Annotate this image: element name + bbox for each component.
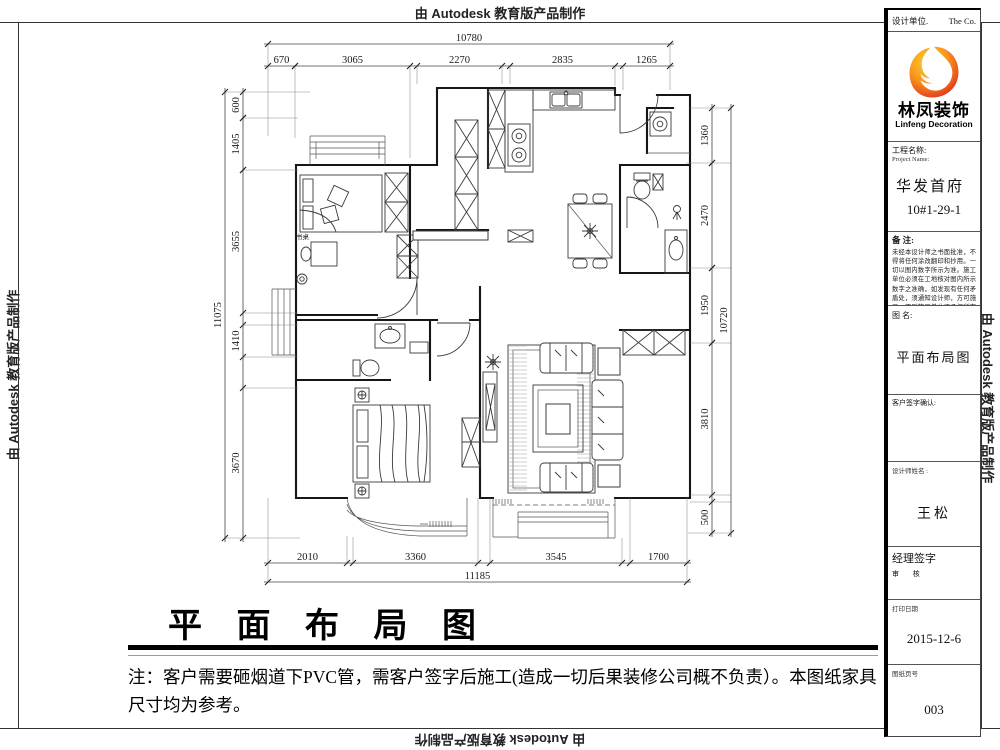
living-balcony <box>493 498 615 538</box>
sheet-number-label: 图纸页号 <box>892 668 976 678</box>
svg-text:1410: 1410 <box>231 331 242 352</box>
title-underline-thin <box>128 655 878 656</box>
review-label: 审 核 <box>892 569 976 579</box>
sofa-main <box>592 380 623 460</box>
svg-text:2010: 2010 <box>297 552 318 563</box>
washing-machine <box>650 112 671 136</box>
wardrobe-study <box>385 173 418 278</box>
project-label: 工程名称: <box>892 145 976 156</box>
svg-text:1700: 1700 <box>648 552 669 563</box>
svg-text:11185: 11185 <box>465 571 490 582</box>
print-date-label: 打印日期 <box>892 603 976 613</box>
bay-window-left <box>272 289 296 355</box>
sheet-number-value: 003 <box>892 702 976 718</box>
desk <box>297 242 337 284</box>
tall-cabinet-column <box>455 90 505 230</box>
svg-text:1265: 1265 <box>636 55 657 66</box>
education-stamp-top: 由 Autodesk 教育版产品制作 <box>0 3 1000 22</box>
dining-plant <box>582 223 598 239</box>
gas-stove <box>508 124 530 166</box>
wardrobe-living <box>623 330 685 355</box>
side-table-top <box>598 348 620 375</box>
toilet-main <box>634 173 650 199</box>
manager-signature-label: 经理签字 <box>892 550 976 566</box>
master-bed <box>353 405 430 482</box>
client-signature-label: 客户签字确认: <box>892 399 936 407</box>
logo-text-en: Linfeng Decoration <box>895 119 972 129</box>
bathroom-main <box>627 112 687 273</box>
study-room: 书桌 <box>296 173 418 318</box>
floor-plan-drawing: 书桌 <box>130 28 880 603</box>
master-vanity <box>375 324 428 353</box>
vanity-main <box>665 230 687 273</box>
bathroom-door <box>627 197 658 228</box>
nightstand-top <box>355 388 369 402</box>
education-stamp-bottom: 由 Autodesk 教育版产品制作 <box>0 731 1000 750</box>
nightstand-bottom <box>355 484 369 498</box>
stamp-border-top <box>0 22 1000 23</box>
education-stamp-left: 由 Autodesk 教育版产品制作 <box>3 290 22 460</box>
svg-text:2835: 2835 <box>552 55 573 66</box>
coffee-table <box>533 385 583 452</box>
company-logo: 林凤装饰 Linfeng Decoration <box>888 32 980 142</box>
svg-text:3065: 3065 <box>342 55 363 66</box>
desk-label: 书桌 <box>296 232 310 241</box>
construction-note: 注：客户需要砸烟道下PVC管，需客户签字后施工(造成一切后果装修公司概不负责）。… <box>128 663 880 719</box>
master-suite <box>347 323 480 536</box>
dimension-annotations: 6703065227028351265107802010336035451700… <box>213 33 734 585</box>
sofa-top <box>540 343 593 373</box>
study-door <box>377 278 417 318</box>
dining-set <box>568 194 612 268</box>
svg-text:3545: 3545 <box>546 552 567 563</box>
svg-text:670: 670 <box>274 55 290 66</box>
designer-name: 王松 <box>892 503 976 523</box>
design-unit-label: 设计单位. <box>892 15 928 27</box>
svg-text:3810: 3810 <box>700 409 711 430</box>
print-date-value: 2015-12-6 <box>892 631 976 647</box>
tv-cabinet <box>483 372 497 442</box>
notes-label: 备 注: <box>892 234 976 246</box>
bay-window-study <box>310 136 385 165</box>
entry-door <box>620 95 658 133</box>
master-door <box>437 323 470 356</box>
project-name: 华发首府 <box>896 175 976 196</box>
walls <box>296 88 690 498</box>
living-room <box>483 330 685 538</box>
drawing-name: 平面布局图 <box>892 347 976 366</box>
svg-text:11075: 11075 <box>213 302 224 328</box>
project-label-en: Project Name: <box>892 156 976 163</box>
shower-head <box>673 206 681 221</box>
stamp-border-bottom <box>0 728 1000 729</box>
svg-text:600: 600 <box>231 97 242 113</box>
svg-text:10720: 10720 <box>719 307 730 333</box>
phoenix-logo-icon <box>905 44 963 102</box>
kitchen <box>505 90 615 172</box>
svg-text:500: 500 <box>700 510 711 526</box>
drawing-name-label: 图 名: <box>892 310 976 321</box>
svg-text:1405: 1405 <box>231 134 242 155</box>
logo-text-cn: 林凤装饰 <box>898 102 970 120</box>
svg-text:1360: 1360 <box>700 125 711 146</box>
title-underline-thick <box>128 645 878 650</box>
plant <box>485 354 501 370</box>
svg-text:3670: 3670 <box>231 453 242 474</box>
designer-label: 设计师姓名 : <box>892 465 976 475</box>
svg-text:2470: 2470 <box>700 205 711 226</box>
title-block: 设计单位. The Co. 林凤装饰 Linfeng Decoration 工程… <box>884 8 981 737</box>
design-unit-value: The Co. <box>949 16 976 26</box>
hall-cabinet <box>413 230 533 242</box>
svg-text:2270: 2270 <box>449 55 470 66</box>
stamp-border-right <box>981 22 982 728</box>
master-toilet <box>353 360 379 376</box>
project-number: 10#1-29-1 <box>892 202 976 218</box>
svg-text:1950: 1950 <box>700 295 711 316</box>
stamp-border-left <box>18 22 19 728</box>
sofa-bottom <box>540 463 593 492</box>
kitchen-sink <box>550 91 582 108</box>
master-balcony <box>347 498 467 536</box>
svg-text:3360: 3360 <box>405 552 426 563</box>
sheet-title: 平 面 布 局 图 <box>168 598 489 647</box>
notes-text: 未经本设计师之书面批准，不得将任何涂改翻印和抄用。一切以图内数字所示为准。施工单… <box>892 248 976 306</box>
svg-text:3655: 3655 <box>231 231 242 252</box>
master-dresser <box>462 418 480 467</box>
side-table-bottom <box>598 465 620 487</box>
svg-text:10780: 10780 <box>456 33 482 44</box>
